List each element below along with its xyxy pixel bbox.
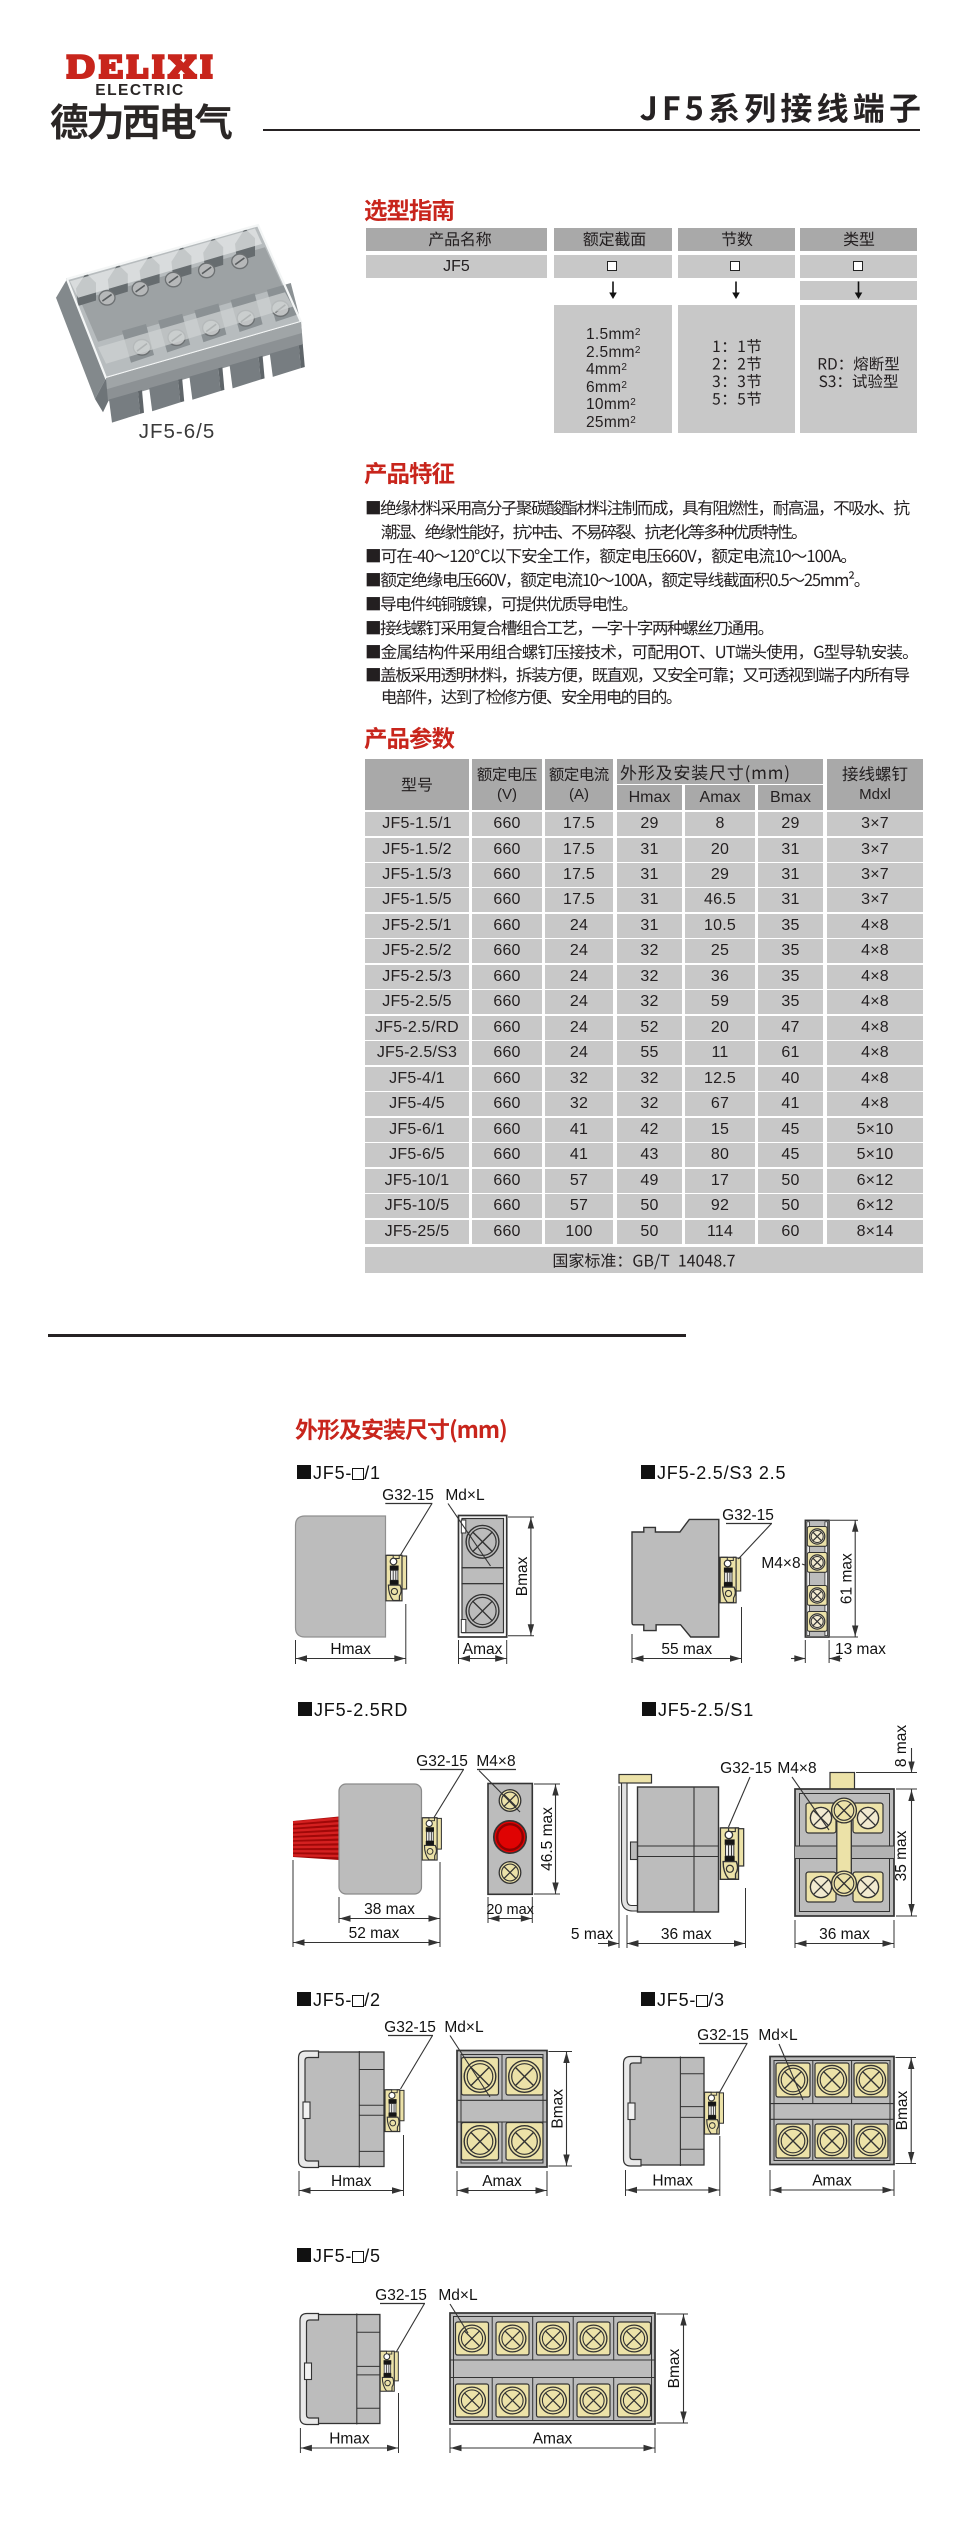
svg-text:35 max: 35 max <box>893 1830 910 1881</box>
svg-text:Amax: Amax <box>463 1641 503 1658</box>
svg-text:G32-15: G32-15 <box>722 1507 774 1524</box>
svg-text:55 max: 55 max <box>661 1641 712 1658</box>
svg-text:G32-15: G32-15 <box>720 1760 772 1777</box>
svg-text:G32-15: G32-15 <box>384 2019 436 2036</box>
svg-text:Hmax: Hmax <box>329 2431 370 2448</box>
svg-text:Hmax: Hmax <box>331 2173 372 2190</box>
svg-text:M4×8: M4×8 <box>476 1753 515 1770</box>
svg-text:Md×L: Md×L <box>445 1487 485 1504</box>
svg-text:Hmax: Hmax <box>652 2173 693 2190</box>
svg-text:Bmax: Bmax <box>514 1556 531 1596</box>
svg-text:38 max: 38 max <box>364 1901 415 1918</box>
svg-text:20 max: 20 max <box>486 1902 534 1918</box>
svg-text:G32-15: G32-15 <box>382 1487 434 1504</box>
svg-text:36 max: 36 max <box>819 1926 870 1943</box>
svg-text:G32-15: G32-15 <box>375 2287 427 2304</box>
svg-text:Hmax: Hmax <box>330 1641 371 1658</box>
svg-text:52 max: 52 max <box>349 1925 400 1942</box>
svg-text:5 max: 5 max <box>571 1926 613 1943</box>
svg-text:Bmax: Bmax <box>550 2089 567 2129</box>
svg-text:Amax: Amax <box>482 2173 522 2190</box>
svg-text:Amax: Amax <box>812 2173 852 2190</box>
svg-text:Amax: Amax <box>533 2431 573 2448</box>
svg-text:M4×8: M4×8 <box>777 1760 816 1777</box>
svg-text:Md×L: Md×L <box>758 2027 798 2044</box>
svg-text:Bmax: Bmax <box>894 2090 911 2130</box>
svg-text:Md×L: Md×L <box>444 2019 484 2036</box>
svg-text:Bmax: Bmax <box>666 2348 683 2388</box>
svg-text:G32-15: G32-15 <box>697 2027 749 2044</box>
svg-text:M4×8: M4×8 <box>761 1555 800 1572</box>
svg-text:8 max: 8 max <box>893 1725 910 1767</box>
svg-text:Md×L: Md×L <box>438 2287 478 2304</box>
svg-text:13 max: 13 max <box>835 1641 886 1658</box>
svg-text:G32-15: G32-15 <box>416 1753 468 1770</box>
svg-text:61 max: 61 max <box>839 1553 856 1604</box>
svg-text:36 max: 36 max <box>661 1926 712 1943</box>
svg-text:46.5 max: 46.5 max <box>539 1807 556 1871</box>
